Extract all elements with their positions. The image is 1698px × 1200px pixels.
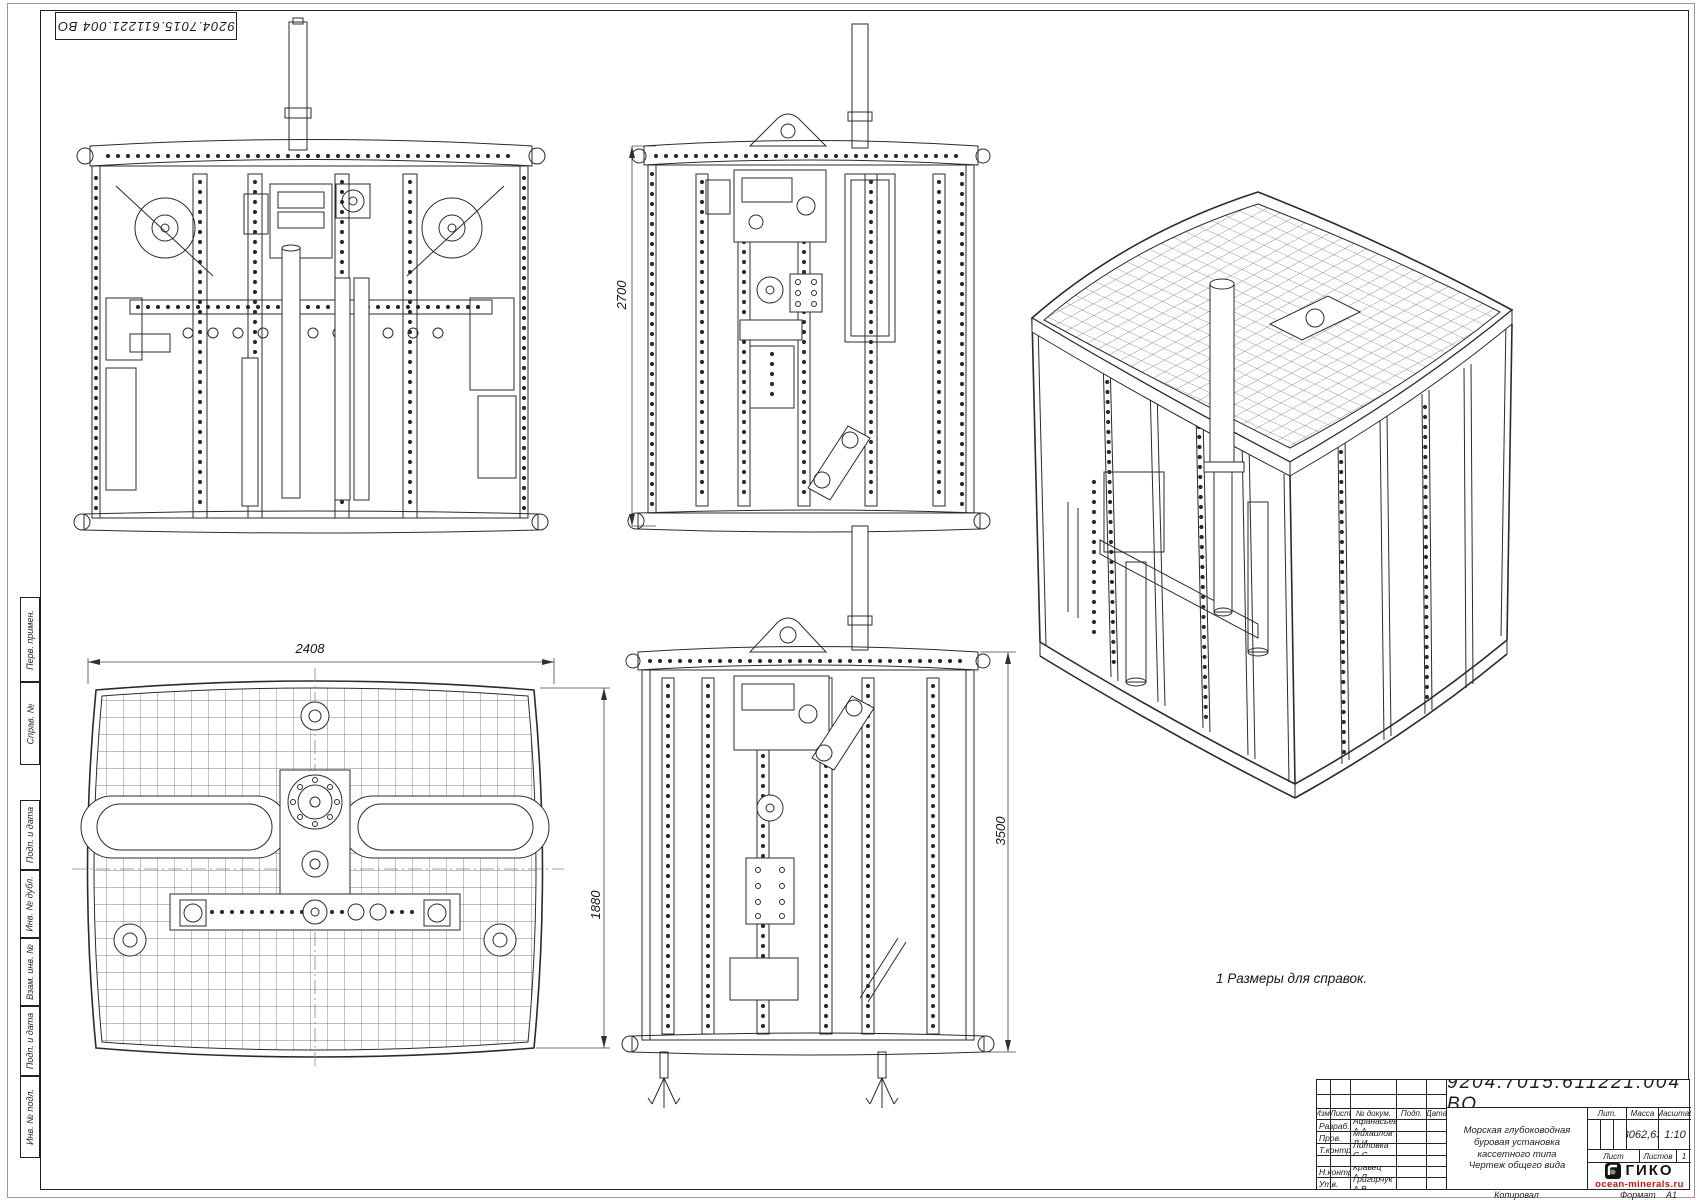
side-view-top-drawing	[598, 18, 1010, 538]
margin-box-podp-data-1: Подп. и дата	[20, 800, 40, 870]
tb-role: Н.контр.	[1317, 1167, 1351, 1178]
tb-title-cell: Морская глубоководная буровая установка …	[1447, 1108, 1588, 1189]
isometric-view-drawing	[1008, 172, 1528, 806]
tb-col-izm: Изм.	[1317, 1108, 1331, 1120]
margin-label: Перв. примен.	[25, 610, 35, 670]
tb-mass-value: 3062,63	[1627, 1120, 1659, 1150]
margin-label: Инв. № дубл.	[25, 876, 35, 931]
tb-name: Кравец А.Л.	[1351, 1167, 1397, 1178]
tb-name: Афанасьев А.А.	[1351, 1120, 1397, 1132]
margin-box-sprav-no: Справ. №	[20, 682, 40, 765]
margin-label: Взам. инв. №	[25, 944, 35, 1000]
tb-role: Разраб.	[1317, 1120, 1351, 1132]
dim-plan-depth: 1880	[588, 870, 603, 940]
plan-view-drawing	[72, 598, 620, 1090]
dim-side-height: 3500	[993, 796, 1008, 866]
tb-col-podp: Подп.	[1397, 1108, 1427, 1120]
margin-label: Инв. № подл.	[25, 1089, 35, 1145]
margin-box-inv-podl: Инв. № подл.	[20, 1076, 40, 1158]
tb-sheets-label: Листов	[1640, 1150, 1677, 1163]
tb-title-line: кассетного типа	[1464, 1149, 1571, 1161]
front-view-drawing	[68, 16, 554, 542]
roller-row	[183, 328, 443, 338]
margin-box-perv-primen: Перв. примен.	[20, 597, 40, 682]
tb-title-line: Чертеж общего вида	[1464, 1160, 1571, 1172]
tb-scale-value: 1:10	[1659, 1120, 1691, 1150]
tb-role: Пров.	[1317, 1132, 1351, 1144]
margin-label: Подп. и дата	[25, 1013, 35, 1069]
footer-format-value: А1	[1666, 1190, 1677, 1200]
tb-role: Т.контр.	[1317, 1144, 1351, 1156]
tb-sheets-value: 1	[1677, 1150, 1691, 1163]
side-view-bottom-drawing	[598, 518, 1028, 1118]
anchor-feet	[648, 1052, 898, 1108]
giko-logo-icon	[1605, 1163, 1621, 1179]
tb-sheet-label: Лист	[1588, 1150, 1640, 1163]
tb-name: Литовка С.С.	[1351, 1144, 1397, 1156]
reference-note: 1 Размеры для справок.	[1216, 971, 1367, 986]
margin-label: Подп. и дата	[25, 807, 35, 863]
tb-name: Михайлов Д.И.	[1351, 1132, 1397, 1144]
drawing-sheet: 9204.7015.611221.004 ВО Перв. примен. Сп…	[0, 0, 1698, 1200]
tb-role	[1317, 1156, 1351, 1167]
tb-title-line: Морская глубоководная	[1464, 1125, 1571, 1137]
title-block: Изм. Лист № докум. Подп. Дата Разраб. Аф…	[1316, 1079, 1690, 1190]
giko-logo-text: ГИКО	[1625, 1163, 1673, 1179]
tb-mass-label: Масса	[1627, 1108, 1659, 1120]
margin-label: Справ. №	[25, 703, 35, 744]
tb-name: Григорчук А.В.	[1351, 1178, 1397, 1189]
margin-box-podp-data-2: Подп. и дата	[20, 1006, 40, 1076]
giko-logo-url: ocean-minerals.ru	[1595, 1179, 1684, 1189]
tb-doc-number: 9204.7015.611221.004 ВО	[1447, 1080, 1691, 1108]
footer-copied: Копировал	[1446, 1190, 1587, 1200]
tb-role: Утв.	[1317, 1178, 1351, 1189]
tb-col-list: Лист	[1331, 1108, 1351, 1120]
tb-logo-cell: ГИКО ocean-minerals.ru	[1588, 1163, 1691, 1189]
tb-lit-label: Лит.	[1588, 1108, 1627, 1120]
tb-col-docnum: № докум.	[1351, 1108, 1397, 1120]
dim-front-height: 2700	[614, 260, 629, 330]
tb-scale-label: Масштаб	[1659, 1108, 1691, 1120]
footer-format-label: Формат	[1620, 1190, 1656, 1200]
perforated-columns	[193, 174, 417, 518]
tb-col-data: Дата	[1427, 1108, 1447, 1120]
tb-title-line: буровая установка	[1464, 1137, 1571, 1149]
dim-plan-width: 2408	[270, 641, 350, 656]
top-mesh	[1044, 204, 1500, 448]
margin-box-inv-dubl: Инв. № дубл.	[20, 870, 40, 938]
margin-box-vzam-inv: Взам. инв. №	[20, 938, 40, 1006]
